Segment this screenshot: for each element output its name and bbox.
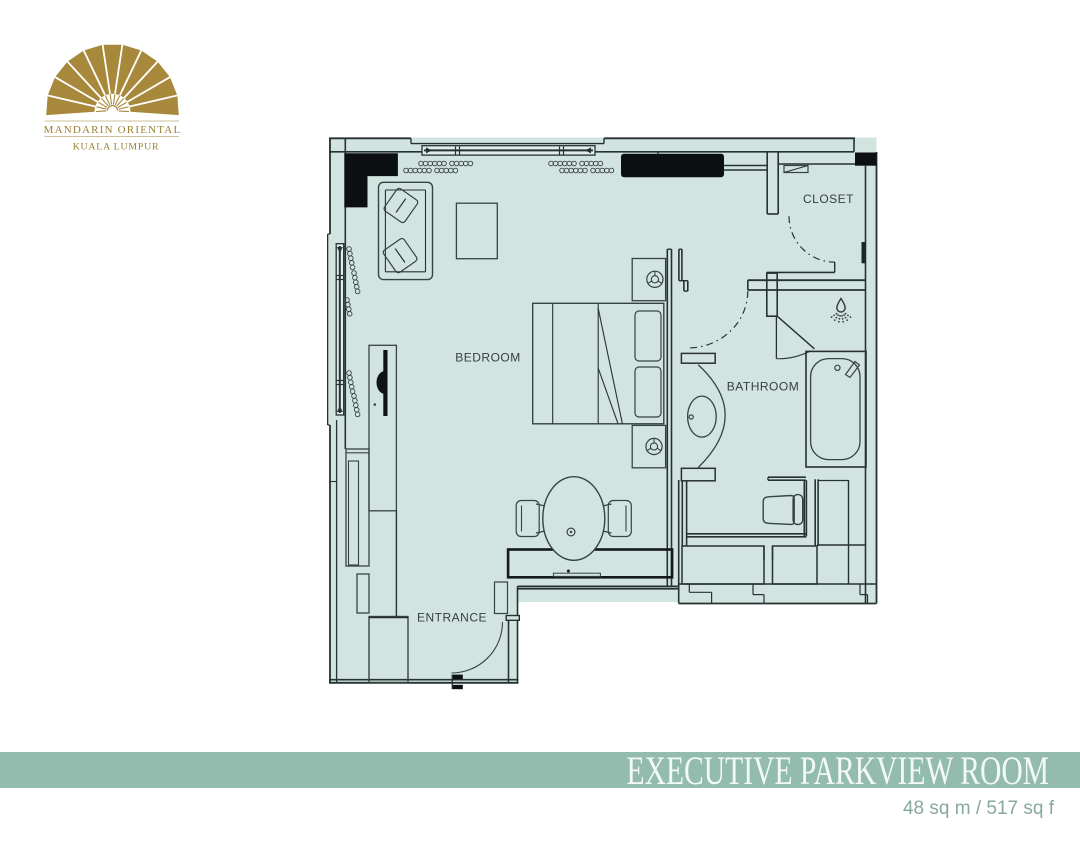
svg-text:BEDROOM: BEDROOM (455, 351, 521, 365)
svg-text:CLOSET: CLOSET (803, 192, 854, 206)
svg-text:ENTRANCE: ENTRANCE (417, 611, 487, 625)
svg-text:BATHROOM: BATHROOM (727, 380, 799, 394)
svg-text:KUALA LUMPUR: KUALA LUMPUR (73, 142, 160, 153)
svg-text:EXECUTIVE PARKVIEW ROOM: EXECUTIVE PARKVIEW ROOM (627, 752, 1049, 789)
svg-text:MANDARIN ORIENTAL: MANDARIN ORIENTAL (44, 124, 182, 136)
